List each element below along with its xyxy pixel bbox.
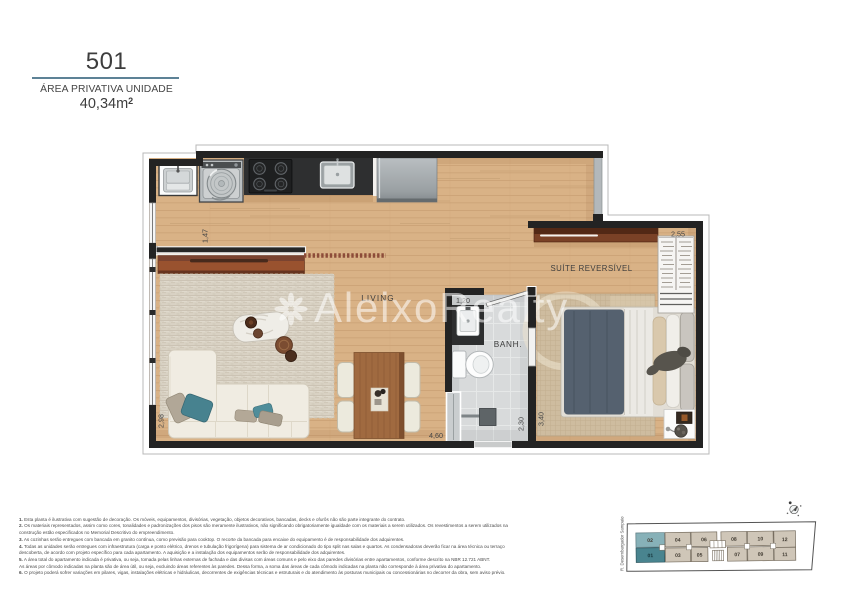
svg-text:06: 06	[701, 537, 707, 543]
svg-text:03: 03	[675, 553, 681, 559]
svg-text:09: 09	[758, 552, 764, 558]
svg-text:08: 08	[731, 537, 737, 543]
svg-text:4,60: 4,60	[429, 431, 443, 440]
svg-text:01: 01	[647, 553, 653, 559]
svg-text:R. Desembargador Sampaio: R. Desembargador Sampaio	[620, 516, 625, 571]
svg-text:SUÍTE REVERSÍVEL: SUÍTE REVERSÍVEL	[550, 264, 632, 273]
svg-text:BANH.: BANH.	[494, 340, 523, 349]
svg-text:05: 05	[697, 553, 703, 559]
svg-text:04: 04	[675, 538, 681, 544]
svg-text:12: 12	[782, 537, 788, 543]
svg-text:10: 10	[757, 536, 763, 542]
svg-text:11: 11	[782, 552, 788, 558]
svg-text:3,40: 3,40	[537, 412, 546, 426]
svg-text:07: 07	[734, 552, 740, 558]
svg-text:2,98: 2,98	[157, 414, 166, 428]
svg-text:2,55: 2,55	[671, 230, 685, 239]
svg-text:2,30: 2,30	[517, 417, 526, 431]
svg-text:02: 02	[647, 538, 653, 544]
svg-text:1,47: 1,47	[201, 229, 210, 243]
